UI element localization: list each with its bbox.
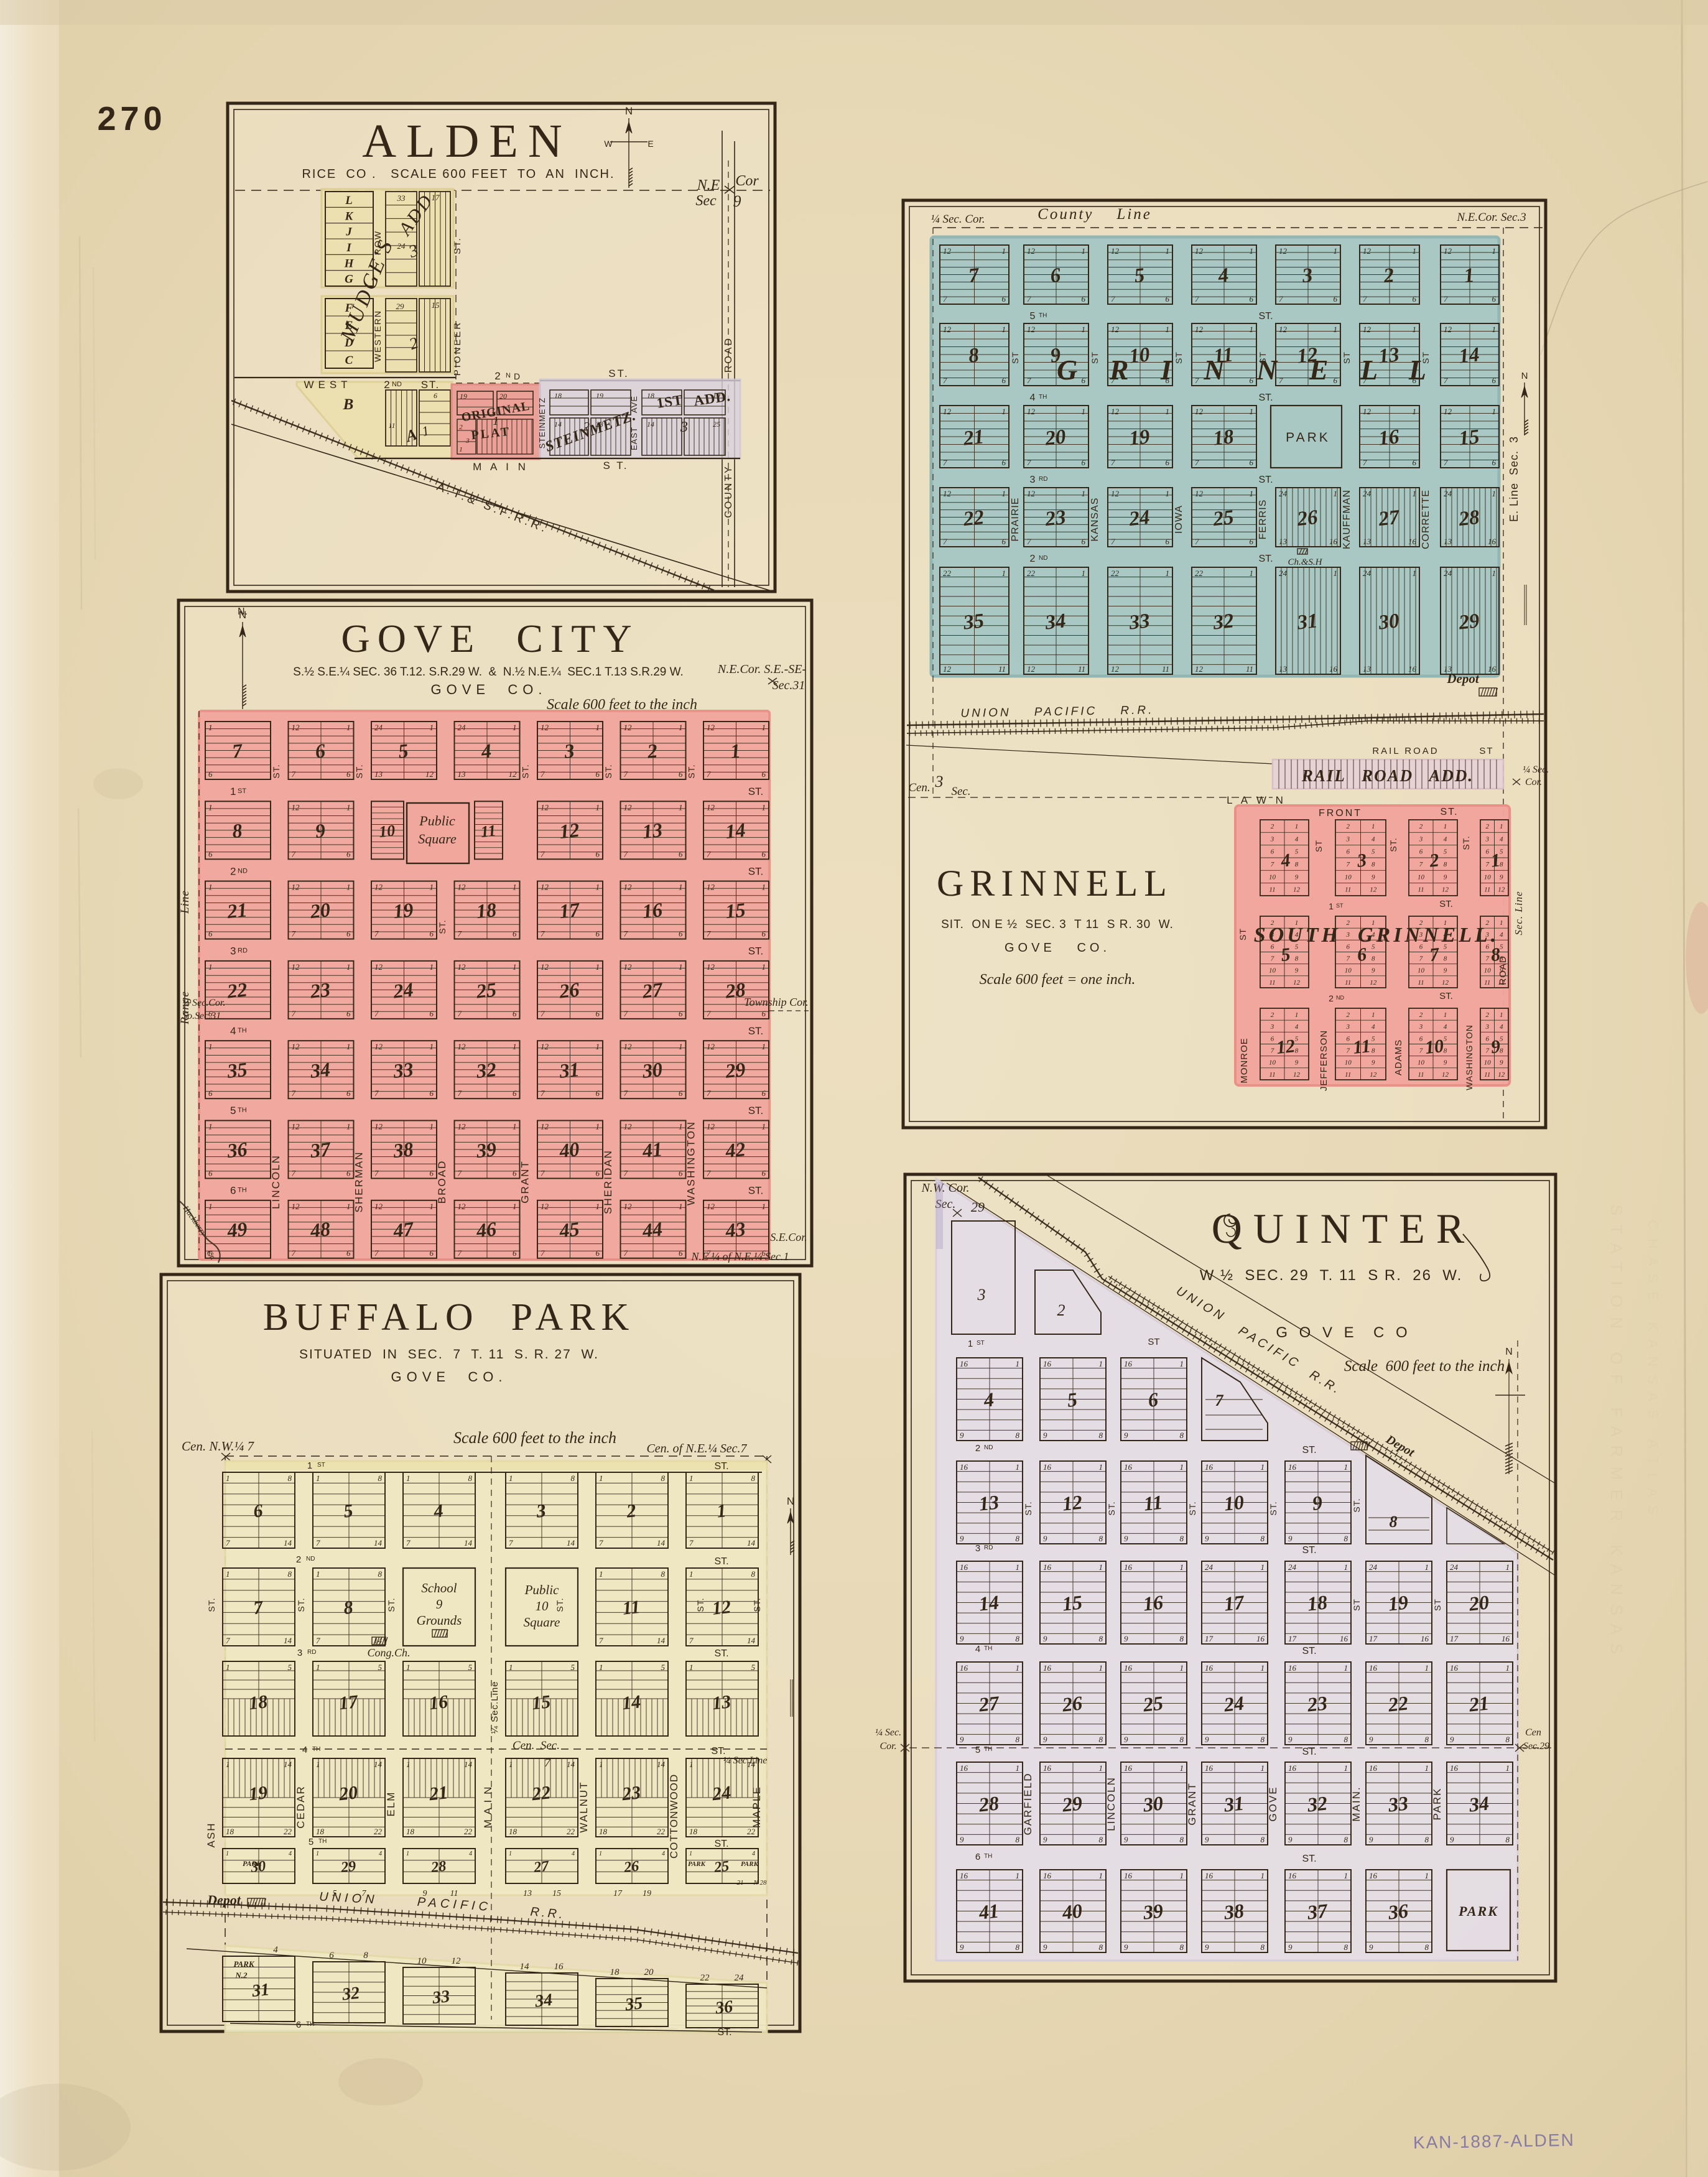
svg-text:26: 26 [1061, 1691, 1084, 1715]
svg-text:RD: RD [307, 1649, 316, 1656]
svg-text:1: 1 [513, 1042, 517, 1051]
svg-text:8: 8 [1372, 861, 1375, 868]
svg-text:6: 6 [1419, 1035, 1423, 1042]
svg-text:23: 23 [620, 1782, 641, 1804]
svg-text:1: 1 [1016, 1359, 1020, 1368]
svg-text:6: 6 [1492, 376, 1497, 385]
svg-text:45: 45 [558, 1217, 581, 1242]
svg-text:1: 1 [1295, 823, 1299, 830]
svg-text:12: 12 [1442, 1071, 1449, 1079]
svg-text:8: 8 [1444, 955, 1447, 963]
svg-text:3: 3 [297, 1648, 302, 1658]
svg-text:Square: Square [418, 831, 457, 847]
svg-text:14: 14 [284, 1636, 292, 1645]
svg-text:1: 1 [1250, 569, 1254, 578]
svg-text:N: N [506, 372, 511, 379]
svg-text:8: 8 [1295, 861, 1299, 868]
svg-text:7: 7 [689, 1636, 694, 1645]
svg-text:6: 6 [513, 1088, 517, 1098]
svg-text:C H A S E K A N S A S A T: C H A S E K A N S A S A T L A S [1645, 1220, 1661, 1516]
svg-text:9: 9 [1288, 1735, 1293, 1744]
svg-text:9: 9 [1043, 1534, 1047, 1543]
svg-text:7: 7 [541, 769, 545, 779]
svg-text:G R I N N E L L: G R I N N E L L [1057, 354, 1439, 386]
svg-text:Ch.&S.H: Ch.&S.H [1288, 557, 1322, 567]
svg-text:7: 7 [1363, 294, 1367, 304]
svg-text:1: 1 [509, 1663, 513, 1672]
svg-text:1: 1 [346, 723, 351, 732]
svg-text:7: 7 [624, 1088, 628, 1098]
svg-text:12: 12 [1293, 1071, 1301, 1079]
svg-text:GOVE CO.: GOVE CO. [431, 682, 547, 697]
svg-text:12: 12 [707, 802, 715, 812]
svg-text:1: 1 [1344, 1562, 1348, 1572]
svg-text:12: 12 [541, 1122, 549, 1131]
svg-text:12: 12 [541, 962, 549, 972]
svg-text:1: 1 [1334, 246, 1338, 256]
svg-text:14: 14 [464, 1760, 473, 1769]
svg-text:1: 1 [346, 802, 351, 812]
svg-text:34: 34 [534, 1990, 554, 2012]
svg-text:7: 7 [1363, 458, 1367, 467]
svg-text:E. Line Sec. 3: E. Line Sec. 3 [1508, 436, 1520, 522]
svg-text:Cen.: Cen. [908, 781, 930, 794]
svg-text:19: 19 [392, 898, 415, 922]
svg-text:12: 12 [1293, 886, 1301, 894]
svg-text:16: 16 [960, 1462, 968, 1472]
svg-text:7: 7 [1346, 1047, 1350, 1055]
svg-text:17: 17 [338, 1691, 359, 1714]
svg-text:5: 5 [661, 1663, 666, 1672]
svg-text:GOVE: GOVE [1267, 1786, 1279, 1821]
svg-text:16: 16 [960, 1663, 968, 1673]
svg-text:KANSAS: KANSAS [1090, 498, 1100, 542]
svg-text:18: 18 [647, 391, 654, 400]
svg-text:16: 16 [1205, 1871, 1214, 1880]
svg-text:3: 3 [230, 945, 236, 957]
svg-text:¼ Sec.: ¼ Sec. [1523, 764, 1549, 775]
svg-text:ST: ST [1090, 351, 1100, 364]
svg-text:24: 24 [1444, 569, 1452, 578]
svg-text:16: 16 [1501, 1634, 1510, 1643]
svg-text:6: 6 [329, 1951, 334, 1961]
svg-text:2: 2 [384, 379, 389, 391]
svg-text:7: 7 [1027, 458, 1031, 467]
svg-text:35: 35 [226, 1058, 249, 1082]
svg-text:1: 1 [596, 723, 600, 732]
svg-text:13: 13 [458, 769, 466, 779]
svg-text:ST.: ST. [1258, 475, 1273, 485]
svg-text:GOVE CO.: GOVE CO. [1005, 941, 1110, 955]
svg-text:25: 25 [1212, 506, 1235, 531]
svg-text:1: 1 [226, 1760, 230, 1769]
svg-text:RD: RD [984, 1544, 993, 1551]
svg-text:34: 34 [1044, 610, 1067, 634]
svg-text:1: 1 [1500, 823, 1503, 830]
svg-text:32: 32 [1306, 1791, 1329, 1816]
svg-text:1: 1 [1261, 1763, 1265, 1773]
svg-text:8: 8 [1506, 1735, 1510, 1744]
svg-text:12: 12 [943, 325, 952, 334]
svg-text:8: 8 [1425, 1735, 1429, 1744]
svg-text:18: 18 [406, 1827, 415, 1836]
svg-text:12: 12 [707, 723, 715, 732]
svg-text:7: 7 [374, 1248, 379, 1258]
svg-text:6: 6 [1250, 294, 1254, 304]
svg-text:16: 16 [428, 1691, 448, 1714]
svg-text:23: 23 [1044, 506, 1067, 531]
svg-text:4: 4 [1444, 1023, 1447, 1031]
svg-text:7: 7 [1346, 861, 1350, 868]
svg-text:7: 7 [943, 537, 947, 546]
svg-text:ROAD: ROAD [723, 337, 734, 373]
svg-text:MAPLE: MAPLE [751, 1786, 763, 1828]
svg-text:10: 10 [1424, 1036, 1444, 1058]
svg-text:14: 14 [621, 1691, 641, 1714]
svg-text:6: 6 [1082, 294, 1086, 304]
svg-text:1: 1 [430, 1122, 434, 1131]
svg-text:8: 8 [1180, 1943, 1184, 1952]
svg-text:Cen: Cen [1525, 1727, 1541, 1738]
svg-text:1: 1 [1506, 1763, 1510, 1773]
svg-text:31: 31 [1222, 1791, 1245, 1816]
svg-text:ROAD: ROAD [1498, 955, 1508, 985]
svg-text:2: 2 [1419, 823, 1423, 830]
svg-text:7: 7 [541, 1088, 545, 1098]
svg-text:6: 6 [208, 929, 213, 939]
svg-text:11: 11 [480, 822, 496, 841]
svg-text:9: 9 [1444, 1059, 1447, 1067]
svg-text:8: 8 [1425, 1943, 1429, 1952]
svg-text:1: 1 [1016, 1663, 1020, 1673]
svg-text:ND: ND [238, 867, 248, 875]
svg-text:9: 9 [1205, 1943, 1209, 1952]
svg-text:10: 10 [1484, 1059, 1492, 1067]
svg-text:1: 1 [1413, 325, 1417, 334]
svg-text:1: 1 [406, 1760, 411, 1769]
svg-text:Sec: Sec [695, 193, 717, 209]
svg-text:7: 7 [1271, 955, 1274, 963]
svg-text:7: 7 [292, 1248, 296, 1258]
svg-text:9: 9 [436, 1597, 443, 1612]
svg-text:1: 1 [1334, 489, 1338, 498]
svg-text:27: 27 [532, 1858, 550, 1876]
svg-text:7: 7 [1111, 294, 1115, 304]
svg-text:11: 11 [1345, 886, 1351, 894]
svg-text:6: 6 [1271, 848, 1274, 856]
svg-text:6: 6 [1334, 294, 1338, 304]
svg-text:9: 9 [1043, 1943, 1047, 1952]
svg-text:15: 15 [1458, 425, 1481, 450]
svg-text:32: 32 [1212, 610, 1235, 634]
svg-text:11: 11 [621, 1597, 641, 1619]
svg-text:7: 7 [624, 769, 628, 779]
svg-text:16: 16 [1043, 1663, 1052, 1673]
svg-text:4: 4 [975, 1644, 980, 1655]
svg-text:7: 7 [624, 1009, 628, 1018]
svg-text:22: 22 [284, 1827, 292, 1836]
svg-text:16: 16 [960, 1763, 968, 1773]
svg-text:22: 22 [567, 1827, 575, 1836]
svg-text:GARFIELD: GARFIELD [1022, 1772, 1034, 1835]
svg-text:6: 6 [513, 1248, 517, 1258]
svg-text:WASHINGTON: WASHINGTON [685, 1121, 697, 1205]
svg-text:ND: ND [392, 381, 402, 388]
svg-text:7: 7 [707, 1088, 711, 1098]
svg-text:12: 12 [1111, 489, 1120, 498]
svg-text:N.2: N.2 [234, 1970, 248, 1980]
svg-text:22: 22 [657, 1827, 666, 1836]
svg-text:ND: ND [984, 1444, 993, 1451]
svg-text:8: 8 [1016, 1634, 1020, 1643]
svg-text:3: 3 [1419, 1023, 1423, 1031]
svg-text:1: 1 [1344, 1462, 1348, 1472]
svg-text:1: 1 [430, 1042, 434, 1051]
svg-text:7: 7 [458, 1009, 462, 1018]
svg-text:12: 12 [292, 962, 300, 972]
svg-text:16: 16 [1043, 1562, 1052, 1572]
svg-text:TH: TH [238, 1107, 247, 1114]
svg-text:5: 5 [1030, 311, 1036, 322]
svg-text:7: 7 [374, 929, 379, 939]
svg-text:6: 6 [208, 849, 213, 858]
svg-text:10: 10 [1269, 967, 1276, 975]
svg-text:LINCOLN: LINCOLN [1105, 1776, 1117, 1831]
svg-text:1: 1 [599, 1663, 603, 1672]
svg-text:9: 9 [960, 1634, 964, 1643]
svg-text:8: 8 [751, 1569, 756, 1579]
svg-text:6: 6 [1346, 1035, 1350, 1042]
svg-text:ST.: ST. [714, 1839, 728, 1849]
svg-text:14: 14 [374, 1538, 383, 1548]
svg-text:2: 2 [1419, 1011, 1423, 1019]
svg-text:CEDAR: CEDAR [295, 1785, 307, 1829]
svg-text:1: 1 [599, 1850, 602, 1857]
svg-text:ST.: ST. [714, 1556, 728, 1567]
svg-text:7: 7 [316, 1636, 320, 1645]
svg-text:24: 24 [1222, 1691, 1245, 1715]
svg-text:36: 36 [1386, 1899, 1409, 1923]
svg-text:¼ Sec.Cor.: ¼ Sec.Cor. [182, 998, 225, 1008]
svg-text:1: 1 [208, 1042, 213, 1051]
svg-text:29: 29 [971, 1199, 985, 1215]
svg-text:6: 6 [596, 849, 600, 858]
svg-text:12: 12 [1195, 246, 1204, 256]
svg-text:1: 1 [1180, 1663, 1184, 1673]
svg-text:4: 4 [469, 1850, 472, 1857]
svg-text:Cen. of N.E.¼ Sec.7: Cen. of N.E.¼ Sec.7 [646, 1442, 747, 1455]
svg-text:6: 6 [230, 1185, 236, 1197]
svg-text:24: 24 [735, 1973, 745, 1983]
svg-text:ST.: ST. [1187, 1501, 1197, 1515]
svg-text:6: 6 [1250, 458, 1254, 467]
svg-text:33: 33 [1128, 610, 1151, 634]
svg-text:1: 1 [1413, 489, 1417, 498]
svg-text:1: 1 [316, 1663, 320, 1672]
svg-text:1: 1 [1344, 1871, 1348, 1880]
svg-text:22: 22 [1111, 569, 1120, 578]
svg-text:9: 9 [1450, 1835, 1454, 1844]
svg-text:1: 1 [1444, 1011, 1447, 1019]
svg-text:9: 9 [1372, 967, 1375, 975]
svg-text:10: 10 [378, 822, 396, 842]
svg-text:6: 6 [434, 391, 437, 400]
svg-text:ST.: ST. [748, 1105, 764, 1116]
svg-text:19: 19 [460, 392, 467, 401]
svg-text:4: 4 [1295, 1023, 1299, 1031]
svg-text:5: 5 [468, 1663, 473, 1672]
svg-text:6: 6 [679, 1248, 683, 1258]
svg-text:7: 7 [292, 1009, 296, 1018]
svg-text:24: 24 [374, 723, 383, 732]
svg-text:1: 1 [1002, 246, 1006, 256]
svg-text:3: 3 [977, 1286, 986, 1304]
svg-text:18: 18 [475, 898, 498, 922]
svg-text:1: 1 [689, 1850, 692, 1857]
svg-text:11: 11 [1269, 1071, 1275, 1079]
svg-text:9: 9 [1124, 1735, 1128, 1744]
svg-text:ST.: ST. [1388, 837, 1398, 852]
svg-text:6: 6 [1082, 458, 1086, 467]
svg-text:7: 7 [1195, 458, 1199, 467]
svg-text:RAIL ROAD: RAIL ROAD [1372, 746, 1439, 756]
svg-text:ST.: ST. [1023, 1501, 1033, 1515]
svg-text:LINCOLN: LINCOLN [270, 1154, 282, 1209]
svg-text:SHERMAN: SHERMAN [353, 1151, 365, 1212]
svg-text:ST.: ST. [421, 379, 440, 391]
svg-text:1: 1 [1016, 1871, 1020, 1880]
svg-text:Scale 600 feet = one inch.: Scale 600 feet = one inch. [980, 972, 1136, 988]
svg-text:12: 12 [707, 1122, 715, 1131]
svg-text:47: 47 [392, 1217, 416, 1242]
svg-text:25: 25 [1141, 1691, 1164, 1715]
svg-text:34: 34 [1467, 1791, 1490, 1816]
svg-text:9: 9 [1444, 873, 1447, 881]
svg-text:12: 12 [624, 1202, 633, 1211]
svg-text:12: 12 [292, 723, 300, 732]
svg-text:12: 12 [292, 883, 300, 892]
svg-text:41: 41 [977, 1899, 1000, 1923]
svg-text:26: 26 [623, 1858, 640, 1875]
svg-text:22: 22 [1195, 569, 1204, 578]
svg-text:S.½ S.E.¼ SEC. 36 T.12. S.R.29: S.½ S.E.¼ SEC. 36 T.12. S.R.29 W. & N.½ … [293, 666, 684, 679]
svg-text:ST.: ST. [355, 764, 364, 778]
svg-text:ST.: ST. [1461, 835, 1471, 850]
svg-text:Public: Public [524, 1582, 559, 1597]
svg-text:12: 12 [559, 819, 581, 843]
svg-text:9: 9 [1124, 1835, 1128, 1844]
svg-text:Line: Line [179, 890, 192, 914]
svg-text:1: 1 [1099, 1763, 1103, 1773]
svg-text:J: J [345, 226, 352, 239]
svg-text:¼ Sec.: ¼ Sec. [875, 1727, 901, 1738]
svg-text:1: 1 [346, 1122, 351, 1131]
svg-text:12: 12 [1111, 325, 1120, 334]
svg-text:7: 7 [226, 1538, 230, 1548]
svg-text:13: 13 [978, 1490, 1000, 1515]
svg-text:7: 7 [689, 1538, 694, 1548]
svg-text:14: 14 [747, 1538, 756, 1548]
svg-text:1: 1 [1261, 1462, 1265, 1472]
svg-text:1: 1 [406, 1663, 411, 1672]
svg-text:GOVE CO.: GOVE CO. [391, 1369, 508, 1385]
svg-text:6: 6 [1271, 1035, 1274, 1042]
svg-text:6: 6 [762, 849, 766, 858]
svg-text:TH: TH [1039, 312, 1047, 319]
svg-text:11: 11 [1484, 1071, 1490, 1079]
svg-text:6: 6 [346, 1009, 351, 1018]
svg-text:3: 3 [1419, 835, 1423, 843]
svg-text:ST: ST [1479, 746, 1493, 756]
svg-text:1: 1 [346, 1202, 351, 1211]
svg-text:14: 14 [647, 420, 654, 429]
svg-text:14: 14 [554, 420, 562, 429]
svg-text:7: 7 [292, 849, 296, 858]
svg-text:1: 1 [208, 962, 213, 972]
svg-text:1: 1 [762, 962, 766, 972]
svg-text:6: 6 [1485, 1035, 1489, 1042]
svg-text:6: 6 [762, 929, 766, 939]
svg-text:1: 1 [1180, 1763, 1184, 1773]
svg-text:6: 6 [346, 929, 351, 939]
svg-text:10: 10 [1418, 967, 1425, 975]
svg-text:M A I N: M A I N [473, 461, 529, 473]
svg-text:7: 7 [943, 294, 947, 304]
svg-text:12: 12 [1195, 664, 1204, 674]
svg-text:1: 1 [307, 1460, 312, 1471]
svg-text:ND: ND [306, 1556, 315, 1562]
svg-text:ST: ST [1174, 351, 1184, 364]
svg-text:14: 14 [725, 819, 747, 843]
svg-text:8: 8 [1261, 1943, 1265, 1952]
svg-text:8: 8 [1099, 1431, 1103, 1440]
svg-text:8: 8 [1444, 861, 1447, 868]
svg-text:1: 1 [1329, 901, 1334, 911]
svg-text:1: 1 [1344, 1763, 1348, 1773]
svg-text:17: 17 [613, 1889, 623, 1898]
svg-text:9: 9 [1124, 1534, 1128, 1543]
svg-text:5: 5 [1295, 1035, 1299, 1042]
svg-text:ST.: ST. [752, 1597, 762, 1612]
svg-text:1: 1 [1180, 1562, 1184, 1572]
svg-text:12: 12 [541, 883, 549, 892]
svg-text:8: 8 [1180, 1634, 1184, 1643]
svg-text:7: 7 [599, 1636, 603, 1645]
svg-text:7: 7 [1419, 861, 1423, 868]
svg-text:4: 4 [1372, 835, 1375, 843]
svg-text:21: 21 [1467, 1691, 1490, 1715]
svg-text:1: 1 [226, 1850, 229, 1857]
svg-text:1: 1 [1016, 1763, 1020, 1773]
svg-text:Cor: Cor [735, 173, 759, 189]
svg-text:6: 6 [1413, 294, 1417, 304]
svg-text:11: 11 [388, 421, 395, 430]
svg-text:6: 6 [762, 769, 766, 779]
svg-text:22: 22 [530, 1782, 551, 1804]
svg-text:13: 13 [374, 769, 383, 779]
svg-text:16: 16 [1329, 664, 1338, 674]
svg-text:KAN-1887-ALDEN: KAN-1887-ALDEN [1413, 2130, 1575, 2153]
svg-text:N.E.Cor. S.E.-SE-: N.E.Cor. S.E.-SE- [717, 662, 806, 676]
svg-text:16: 16 [1205, 1462, 1214, 1472]
svg-text:15: 15 [531, 1691, 551, 1714]
svg-text:1: 1 [316, 1474, 320, 1483]
svg-text:7: 7 [599, 1538, 603, 1548]
svg-text:ST: ST [1314, 840, 1324, 852]
svg-text:1: 1 [1334, 569, 1338, 578]
svg-text:12: 12 [292, 1042, 300, 1051]
svg-text:1: 1 [226, 1569, 230, 1579]
